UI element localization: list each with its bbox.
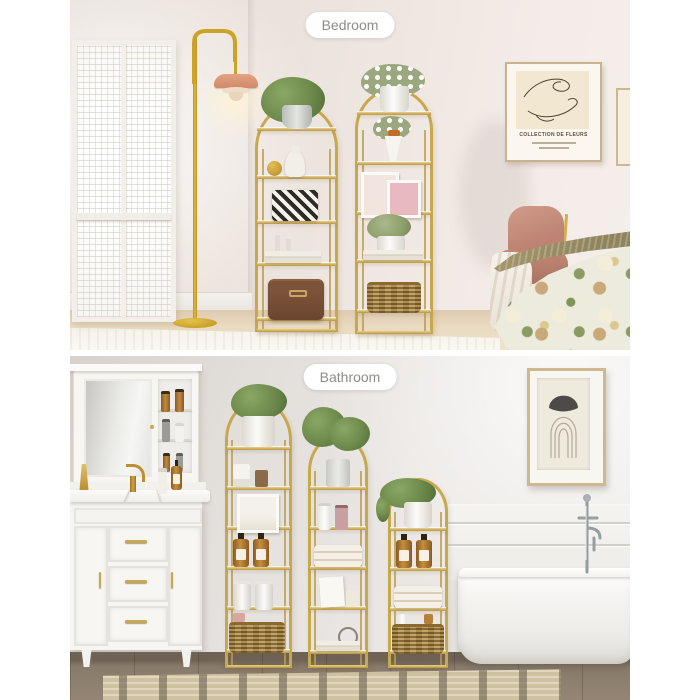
poster-caption-line [532, 142, 576, 144]
marble-countertop [70, 490, 210, 502]
amber-pump-bottle [233, 539, 249, 567]
gray-bottle [162, 419, 170, 442]
wicker-basket [229, 622, 285, 653]
mercury-vase [282, 105, 312, 129]
poster-caption-line [539, 147, 569, 149]
bouquet-bow [388, 130, 400, 136]
bottle-neck [398, 614, 407, 624]
shelf-bar [257, 221, 336, 224]
shelf-bar [227, 447, 290, 450]
white-pump-bottle [318, 503, 331, 530]
shelf-bar [390, 665, 446, 668]
pink-box [233, 613, 245, 622]
shelf-bar [390, 608, 446, 611]
arched-shelf-tall [225, 400, 292, 668]
shelf-bar [357, 331, 431, 334]
vanity-drawer [108, 566, 168, 602]
bedroom-badge-label: Bedroom [322, 17, 379, 33]
bathroom-photo[interactable]: Bathroom [70, 356, 630, 700]
figurine-head [291, 145, 300, 154]
shelf-post [424, 130, 426, 334]
window-rail [77, 213, 171, 220]
door-handle [171, 572, 173, 588]
vanity-apron [74, 508, 202, 524]
white-canister [255, 581, 273, 610]
product-composite-image: Bedroom [0, 0, 700, 700]
shelf-post [362, 130, 364, 334]
green-branches [330, 417, 370, 451]
arch-line-artwork [527, 368, 606, 486]
shelf-bar [357, 162, 431, 165]
shelf-bar [357, 260, 431, 263]
wicker-basket [367, 282, 421, 313]
bedroom-badge: Bedroom [306, 12, 395, 38]
vanity-door-right [168, 526, 202, 646]
shelf-bar [390, 568, 446, 571]
drawer-pull [125, 580, 147, 583]
shelf-bar [310, 567, 366, 570]
shelf-bar [310, 487, 366, 490]
bedroom-photo[interactable]: Bedroom [70, 0, 630, 350]
amber-pump-bottle [396, 540, 412, 568]
arched-bookshelf-left [255, 103, 338, 332]
mirror-door [84, 379, 152, 477]
angel-figurine [285, 151, 305, 177]
shelf-bar [310, 607, 366, 610]
mirror-knob [150, 425, 154, 429]
shelf-bar [310, 665, 366, 668]
gold-apple-decor [267, 161, 282, 176]
shelf-bar [227, 567, 290, 570]
vanity-door-left [74, 526, 108, 646]
poster-art [516, 71, 589, 129]
shelf-picture-frame [237, 494, 279, 533]
folded-towels [394, 586, 442, 608]
tub-faucet [575, 490, 605, 574]
window-divider [121, 45, 126, 317]
lamp-shade [214, 74, 258, 88]
bathtub [458, 568, 630, 664]
poster-title: COLLECTION DE FLEURS [507, 132, 600, 138]
shelf-bar [227, 665, 290, 668]
arched-shelf-medium [308, 435, 368, 668]
brown-jar [255, 470, 268, 487]
shelf-bar [257, 329, 336, 332]
sachet [346, 591, 358, 607]
candle-jar [233, 464, 250, 487]
shelf-bar [310, 651, 366, 654]
vanity-faucet-base [130, 476, 136, 492]
arched-shelf-short [388, 478, 448, 668]
wicker-basket [392, 624, 444, 654]
floor-lamp-base [173, 318, 217, 328]
vanity-cabinet [70, 502, 202, 650]
artwork-mat [537, 378, 590, 470]
white-bottle [175, 423, 184, 442]
chevron-clutch-bag [272, 190, 318, 221]
leaning-card [319, 576, 345, 608]
lattice-window-screen [72, 40, 176, 322]
white-vase [380, 86, 409, 112]
amber-bottle [175, 389, 184, 412]
bottle-neck [424, 614, 433, 624]
shelf-bar [357, 112, 431, 115]
door-handle [99, 572, 101, 588]
amber-pump-bottle [253, 539, 269, 567]
folded-towels [314, 545, 362, 567]
shelf-bar [390, 528, 446, 531]
white-canister [233, 581, 251, 610]
book-stack [316, 641, 360, 651]
cabinet-open-shelves [158, 379, 192, 473]
mauve-bottle [335, 505, 348, 530]
flower-poster: COLLECTION DE FLEURS [505, 62, 602, 162]
glass-vase [326, 459, 350, 487]
drawer-pull [125, 620, 147, 623]
bathroom-badge: Bathroom [304, 364, 397, 390]
drawer-pull [125, 540, 147, 543]
pink-picture-frame [387, 180, 421, 218]
shelf-bar [257, 263, 336, 266]
cabinet-crown [70, 364, 202, 371]
white-planter [404, 502, 432, 528]
shelf-bar [227, 487, 290, 490]
book-stack [265, 251, 321, 263]
bathroom-badge-label: Bathroom [320, 369, 381, 385]
partial-frame [616, 88, 630, 166]
leather-trunk [268, 279, 324, 320]
soap-dispenser-amber [171, 466, 182, 490]
amber-pump-bottle [416, 540, 432, 568]
arched-bookshelf-right [355, 88, 433, 334]
amber-bottle [161, 391, 170, 412]
white-cylinder-pot [242, 416, 275, 447]
vanity-drawer [108, 526, 168, 562]
soap-dispenser-white [158, 468, 167, 494]
book-stack [363, 250, 423, 260]
vanity-drawer [108, 606, 168, 642]
